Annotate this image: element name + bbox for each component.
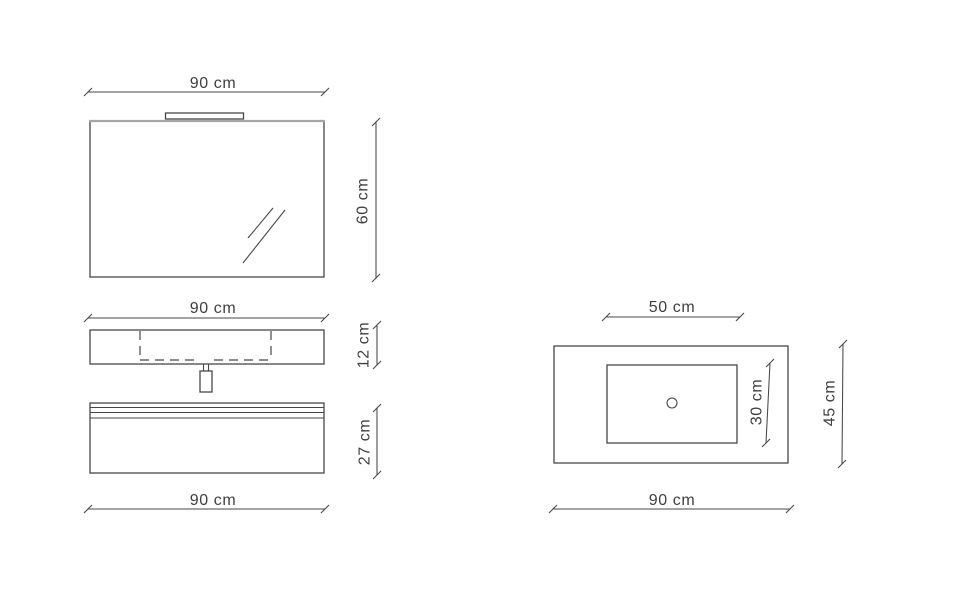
washbasin-height-label: 12 cm [356,322,373,369]
mirror [89,121,325,277]
dimension-line [766,363,770,443]
basin-hidden-outline [140,331,271,360]
cabinet-width-label: 90 cm [190,492,237,509]
mirror-height-dimension: 60 cm [355,118,381,282]
light-fixture [166,113,244,119]
mirror-height-label: 60 cm [355,178,372,225]
front-elevation-view: 90 cm 60 cm 9 [84,75,381,513]
dimension-line [842,344,843,464]
mirror-body [90,121,324,277]
basin-depth-label: 30 cm [749,379,766,426]
basin-depth-dimension: 30 cm [749,359,775,447]
cabinet-body [90,403,324,473]
washbasin-height-dimension: 12 cm [356,321,382,369]
mirror-width-label: 90 cm [190,75,237,92]
countertop-top-view: 50 cm 30 cm 45 cm [549,299,847,513]
countertop-width-dimension: 90 cm [549,492,794,513]
basin-width-label: 50 cm [649,299,696,316]
washbasin-unit [90,330,324,392]
basin-width-dimension: 50 cm [602,299,744,321]
base-cabinet [90,403,324,473]
cabinet-height-label: 27 cm [357,419,374,466]
technical-drawing-page: 90 cm 60 cm 9 [0,0,959,605]
basin [607,365,737,443]
drain-hole [667,398,677,408]
drain-trap [200,371,212,392]
countertop-width-label: 90 cm [649,492,696,509]
mirror-reflection-line [248,208,273,238]
mirror-width-dimension: 90 cm [84,75,329,96]
cabinet-height-dimension: 27 cm [357,404,382,479]
cabinet-width-dimension: 90 cm [84,492,329,513]
washbasin-width-label: 90 cm [190,300,237,317]
countertop-depth-label: 45 cm [822,380,839,427]
technical-drawing-canvas: 90 cm 60 cm 9 [0,0,959,605]
washbasin-width-dimension: 90 cm [84,300,329,322]
countertop-depth-dimension: 45 cm [822,340,848,468]
washbasin-body [90,330,324,364]
